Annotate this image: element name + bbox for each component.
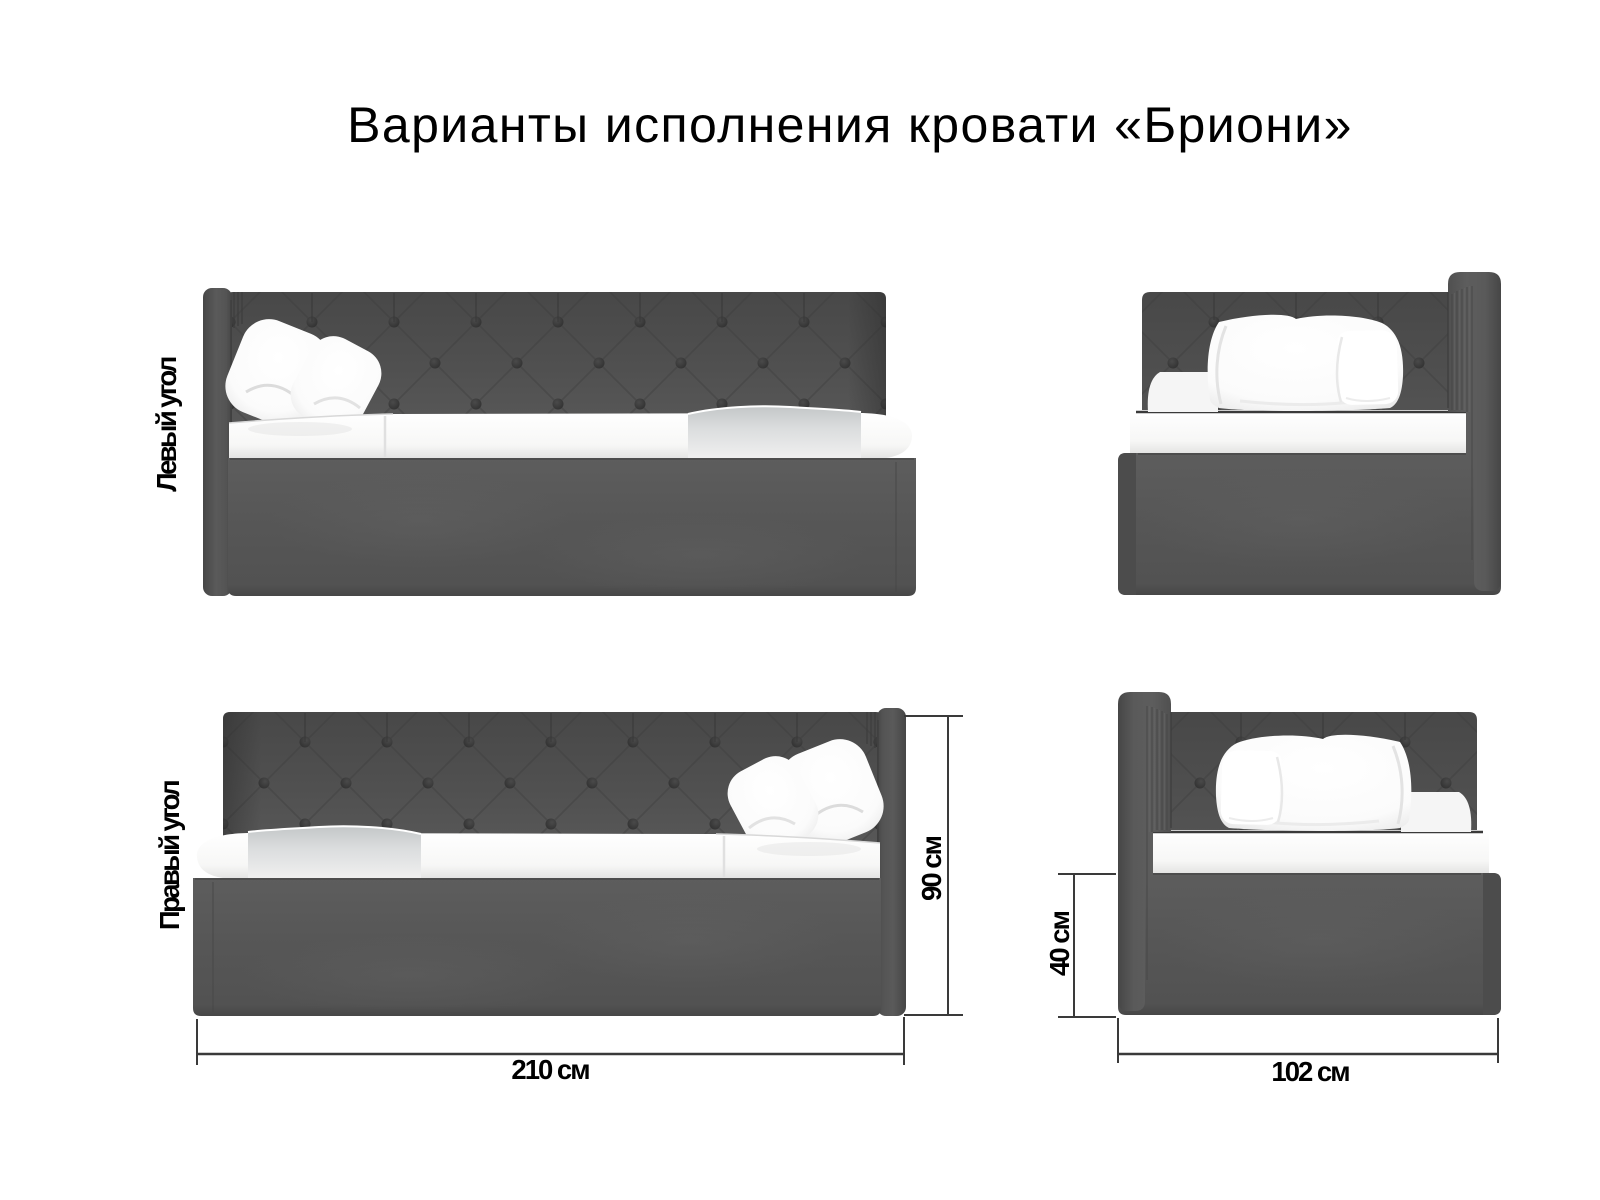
svg-text:40 см: 40 см bbox=[1044, 911, 1075, 976]
svg-text:Левый угол: Левый угол bbox=[151, 357, 182, 492]
svg-text:210 см: 210 см bbox=[511, 1054, 589, 1085]
svg-text:102 см: 102 см bbox=[1271, 1056, 1349, 1087]
svg-text:90 см: 90 см bbox=[916, 836, 947, 901]
svg-text:Варианты исполнения кровати «Б: Варианты исполнения кровати «Бриони» bbox=[347, 97, 1353, 153]
svg-text:Правый угол: Правый угол bbox=[154, 781, 185, 930]
